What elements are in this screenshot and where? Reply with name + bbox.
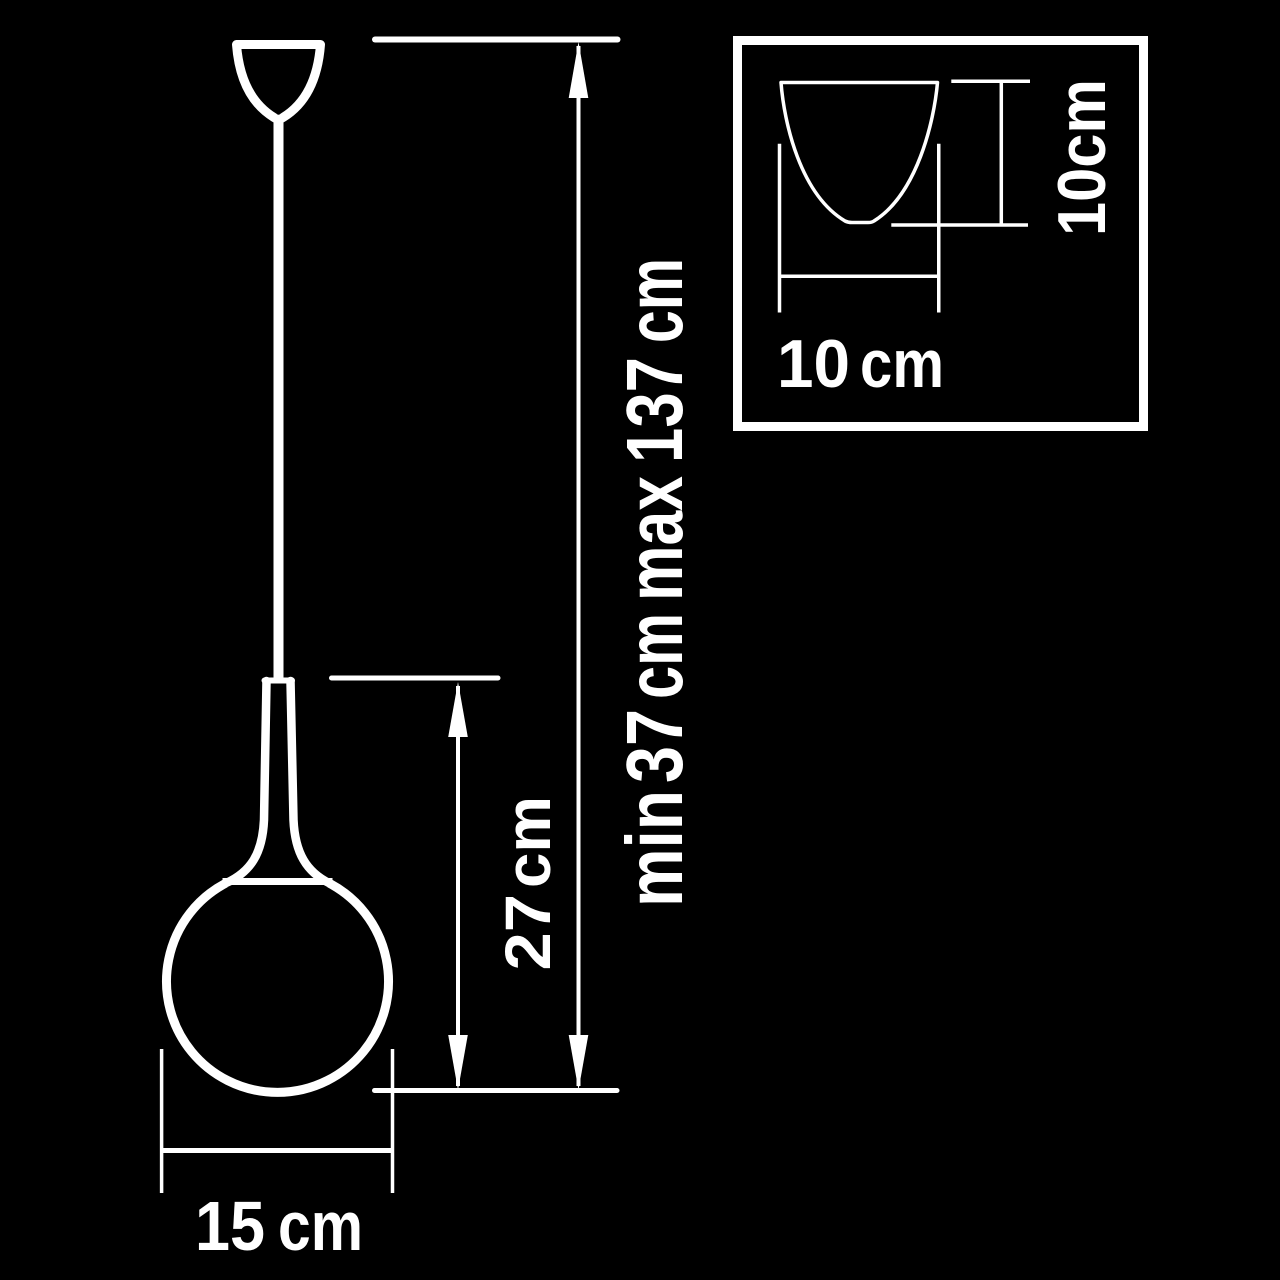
svg-text:27: 27: [492, 894, 564, 971]
svg-text:cm: cm: [492, 796, 564, 888]
svg-text:max: max: [610, 476, 699, 601]
svg-text:137: 137: [610, 357, 699, 463]
svg-text:cm: cm: [860, 327, 944, 402]
svg-text:cm: cm: [278, 1187, 363, 1265]
svg-text:15: 15: [195, 1187, 265, 1265]
svg-text:37: 37: [610, 709, 699, 783]
svg-text:10: 10: [777, 327, 850, 402]
svg-text:min: min: [610, 790, 699, 907]
svg-text:cm: cm: [610, 613, 699, 699]
svg-text:cm: cm: [610, 258, 699, 343]
svg-text:10cm: 10cm: [1045, 79, 1120, 236]
